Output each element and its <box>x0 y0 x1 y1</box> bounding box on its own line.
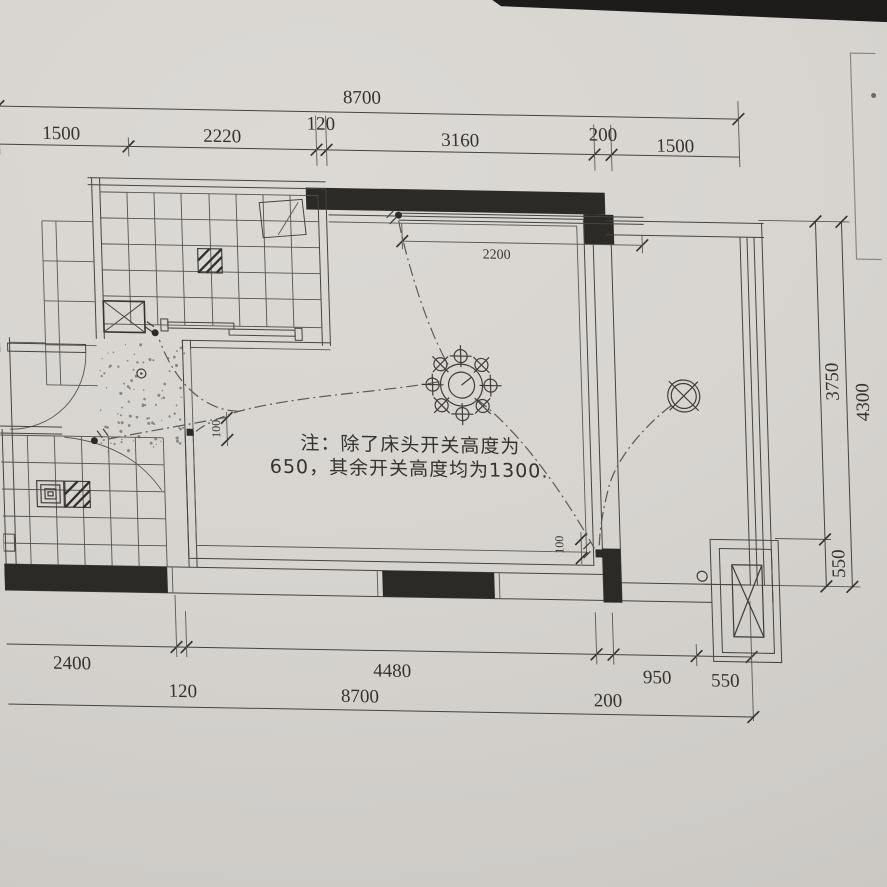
dim-2200: 2200 <box>482 248 510 263</box>
dim-door-offset-left: 100 <box>208 412 233 446</box>
column-bathroom <box>65 481 91 507</box>
adjacent-sheet-frame <box>850 53 887 260</box>
switch-icon-bedroom-wall <box>187 429 194 436</box>
ceiling-chandelier-icon <box>420 344 502 425</box>
bathroom <box>0 426 167 567</box>
floor-drain-bathroom <box>37 481 65 507</box>
dim-top-seg-3160: 3160 <box>441 130 480 152</box>
dim-right-seg-550: 550 <box>828 549 850 578</box>
dim-top-seg-1500a: 1500 <box>42 123 81 145</box>
dim-chain-bottom: 2400 120 4480 200 950 550 8700 <box>0 587 760 723</box>
floor-drain-hall <box>137 369 146 378</box>
entry-door <box>8 343 89 430</box>
dim-top-seg-1500b: 1500 <box>656 136 695 158</box>
dim-100-left: 100 <box>209 420 224 438</box>
bedroom: 2200 100 100 注：除了床头开关高度为 650，其余开关高度均为130… <box>179 212 658 566</box>
dim-bottom-seg-120: 120 <box>168 681 197 702</box>
dim-top-seg-2220: 2220 <box>203 126 242 148</box>
duct-shaft <box>103 301 145 333</box>
dim-bottom-seg-550: 550 <box>711 670 740 691</box>
photo-of-floor-plan: 8700 1500 2220 120 3160 200 1500 <box>0 0 887 887</box>
dim-bottom-overall: 8700 <box>341 686 380 708</box>
pipe-circle <box>697 571 707 581</box>
kitchen-annex <box>42 221 98 386</box>
drawing-sheet: 8700 1500 2220 120 3160 200 1500 <box>0 0 887 887</box>
dim-top-overall: 8700 <box>343 87 382 109</box>
ceiling-light-icon <box>667 380 700 413</box>
bathroom-floor-grid <box>0 435 167 567</box>
dim-bottom-seg-2400: 2400 <box>53 653 92 675</box>
wall-bottom-mid <box>382 571 495 599</box>
dim-bottom-seg-4480: 4480 <box>373 660 412 682</box>
dim-bottom-seg-950: 950 <box>643 667 672 688</box>
dim-right-seg-3750: 3750 <box>822 362 844 400</box>
hallway <box>7 337 197 567</box>
switch-icon-kitchen-door <box>145 322 159 337</box>
dim-right-overall: 4300 <box>852 383 874 421</box>
wall-top-right-corner <box>583 214 614 245</box>
wall-right-lower <box>602 548 622 602</box>
kitchen-sink <box>259 199 306 239</box>
switch-icon-top <box>386 211 402 224</box>
column-kitchen <box>198 249 223 273</box>
balcony <box>606 221 782 663</box>
sliding-door <box>161 319 303 340</box>
dim-bottom-seg-200: 200 <box>593 690 622 711</box>
switches <box>84 206 604 559</box>
wall-bottom-left <box>4 564 168 593</box>
kitchen <box>41 177 332 390</box>
note-line-1: 注：除了床头开关高度为 <box>300 432 521 458</box>
floor-plan-svg: 8700 1500 2220 120 3160 200 1500 <box>0 0 887 887</box>
dim-top-seg-200: 200 <box>588 124 617 145</box>
dim-chain-top: 8700 1500 2220 120 3160 200 1500 <box>0 81 746 173</box>
note-line-2: 650，其余开关高度均为1300. <box>269 456 548 483</box>
dim-chain-right: 3750 550 4300 <box>693 213 879 593</box>
dim-100-right: 100 <box>552 536 567 554</box>
wall-top <box>306 187 606 214</box>
dim-door-offset-right: 100 <box>552 532 588 565</box>
dim-top-seg-120: 120 <box>306 114 335 135</box>
ac-outdoor-unit-platform <box>710 539 782 662</box>
